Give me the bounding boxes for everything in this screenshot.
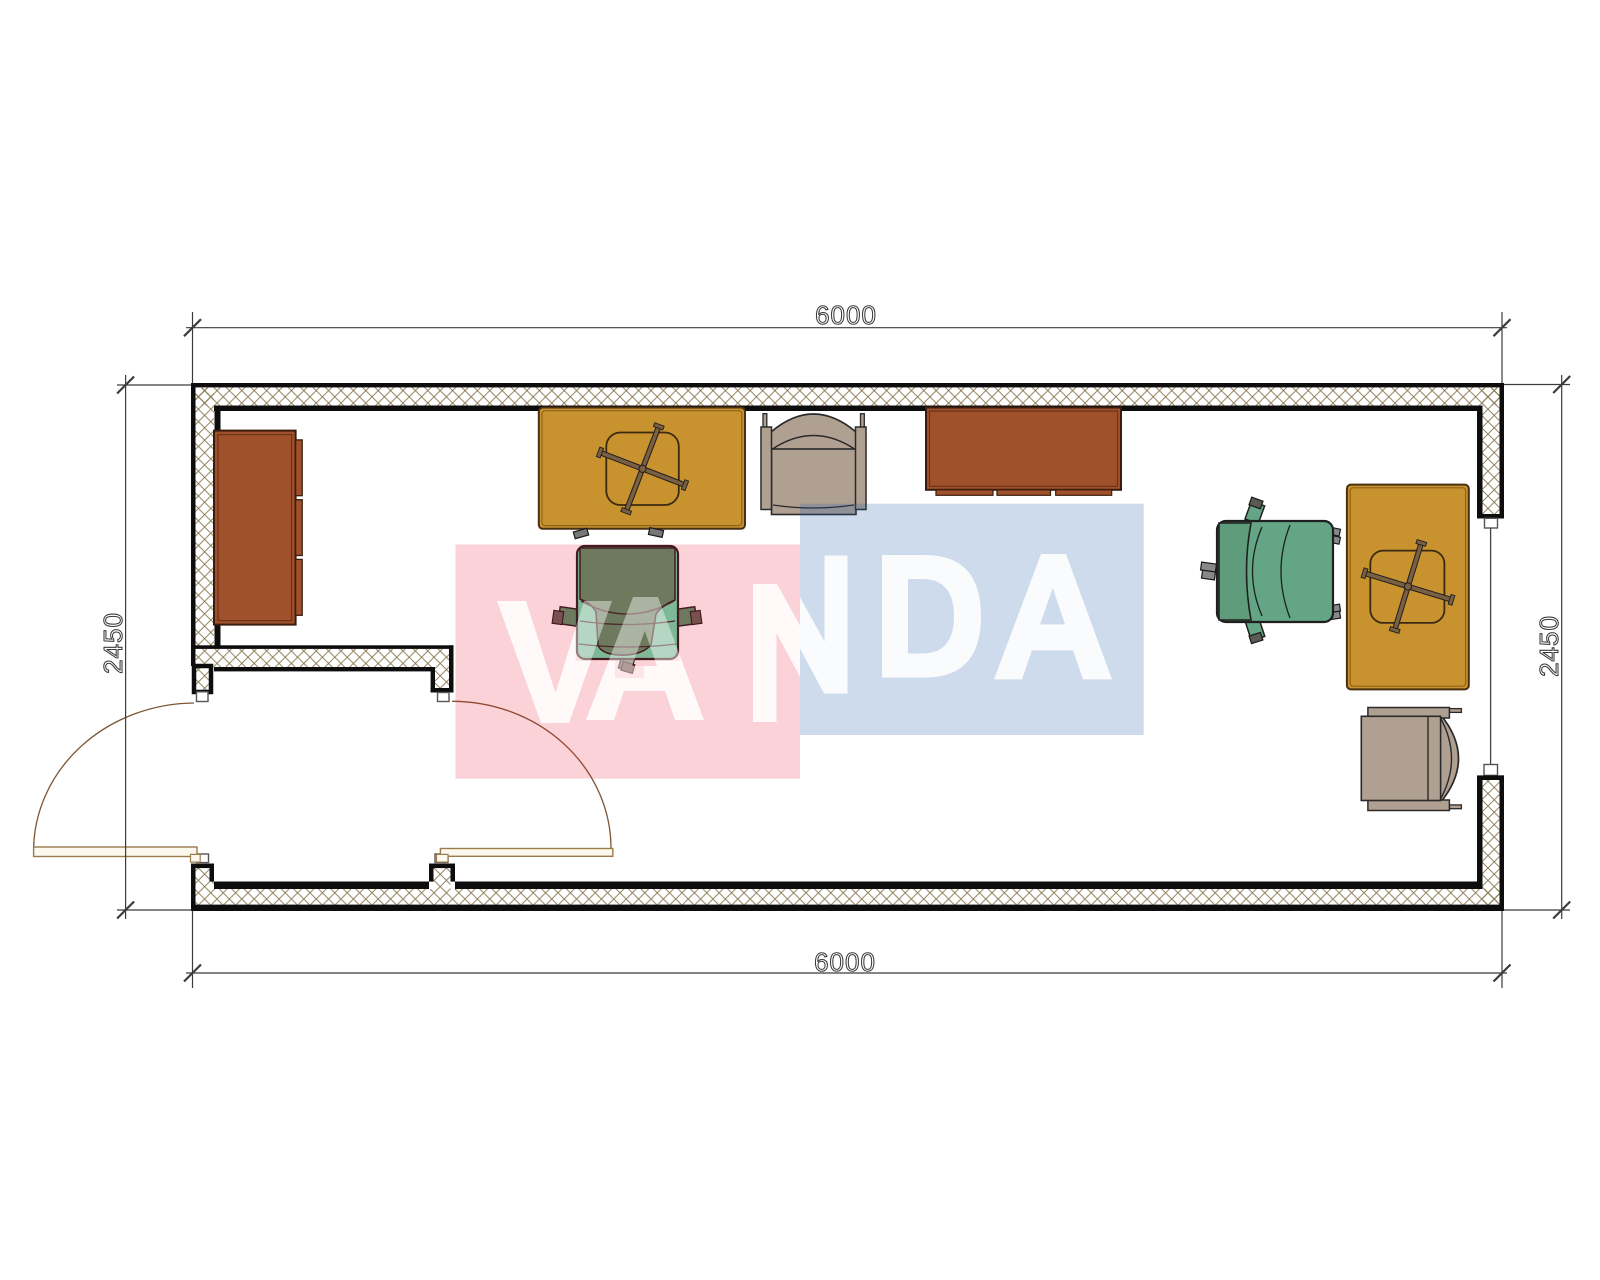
svg-text:6000: 6000 xyxy=(815,300,877,330)
svg-text:2450: 2450 xyxy=(1534,615,1564,677)
svg-text:2450: 2450 xyxy=(98,612,128,674)
svg-text:6000: 6000 xyxy=(814,947,876,977)
